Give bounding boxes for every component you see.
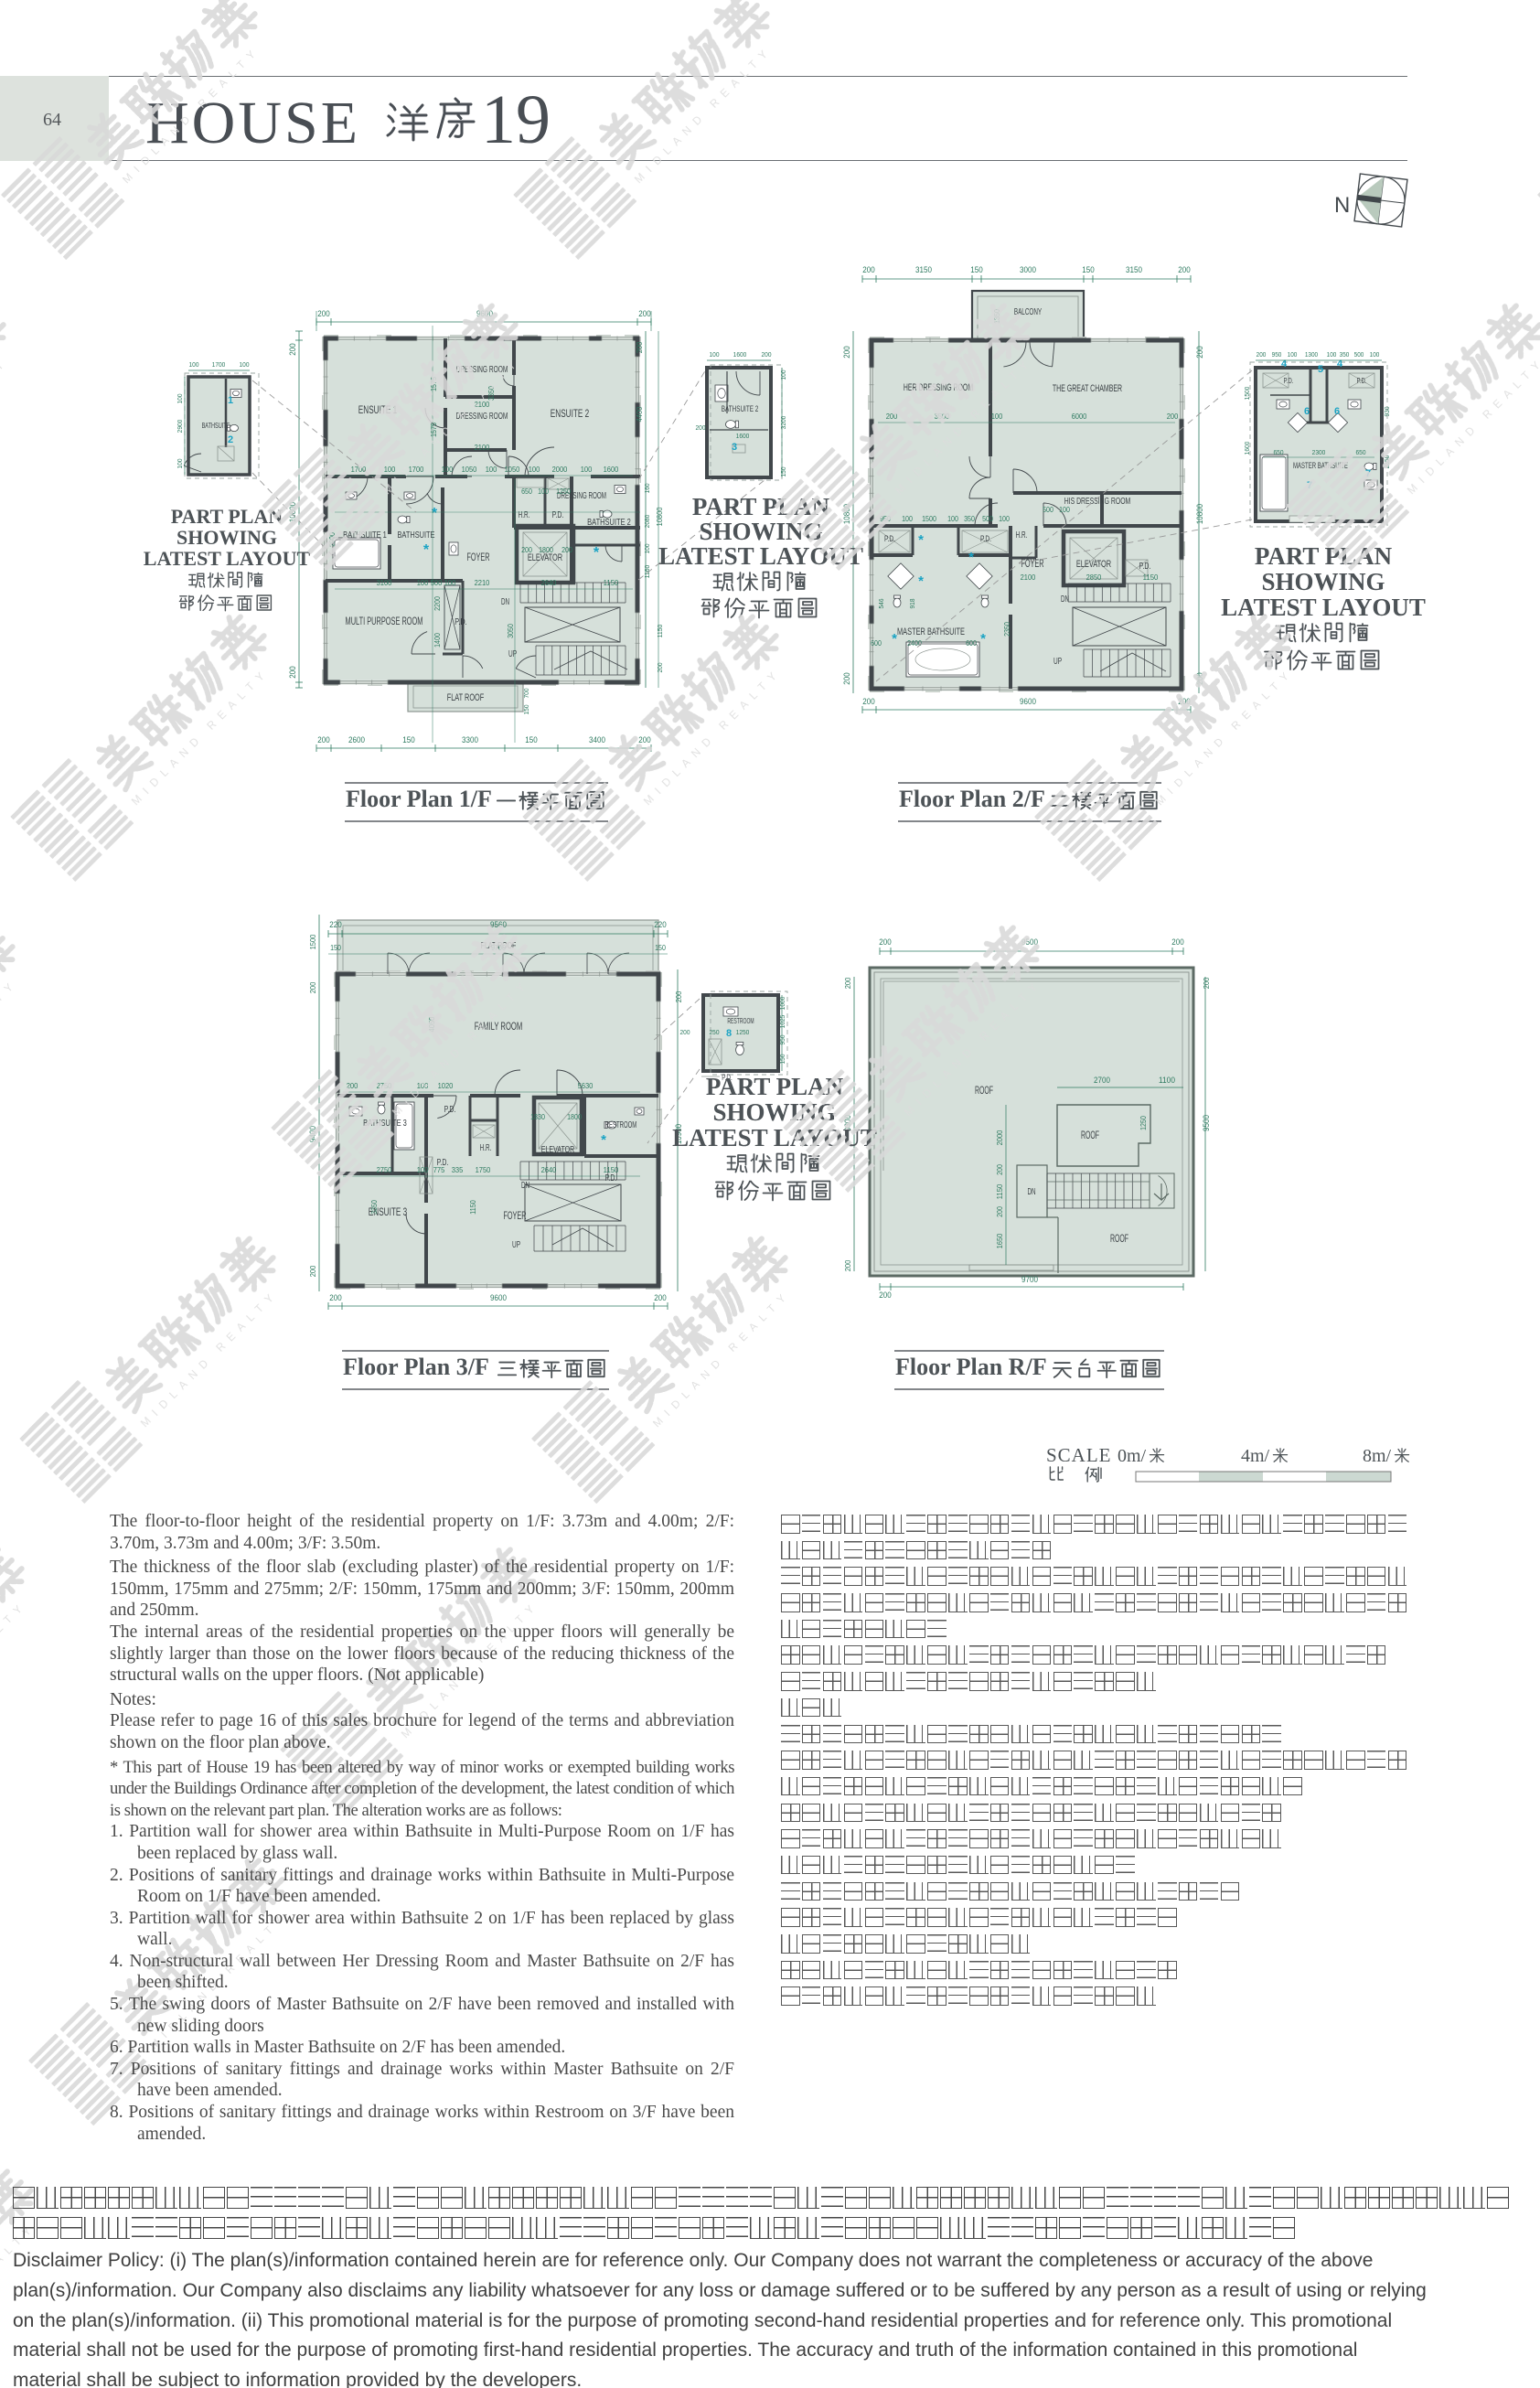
svg-text:1150: 1150: [469, 1200, 477, 1215]
svg-text:500: 500: [1043, 506, 1053, 514]
svg-text:2100: 2100: [475, 443, 490, 452]
svg-text:BATHSUITE: BATHSUITE: [202, 422, 230, 430]
svg-text:1800: 1800: [539, 546, 553, 554]
svg-text:5: 5: [1318, 364, 1323, 375]
svg-text:100: 100: [444, 578, 456, 587]
svg-text:Floor Plan R/F: Floor Plan R/F: [895, 1354, 1047, 1380]
svg-text:UP: UP: [512, 1239, 520, 1250]
svg-text:1025: 1025: [778, 1015, 786, 1029]
svg-text:SCALE: SCALE: [1046, 1444, 1112, 1466]
svg-text:100: 100: [417, 1165, 429, 1174]
svg-text:200: 200: [996, 1206, 1004, 1217]
svg-text:DN: DN: [521, 1180, 529, 1191]
svg-text:THE GREAT CHAMBER: THE GREAT CHAMBER: [1053, 383, 1122, 394]
svg-text:1100: 1100: [1159, 1076, 1175, 1085]
svg-text:200: 200: [674, 991, 683, 1002]
svg-text:1500: 1500: [922, 515, 936, 523]
svg-text:P.D.: P.D.: [1357, 376, 1367, 385]
svg-text:3050: 3050: [507, 624, 515, 638]
svg-text:6: 6: [1334, 406, 1340, 417]
svg-text:150: 150: [778, 1055, 786, 1065]
svg-text:*: *: [918, 532, 924, 548]
svg-text:100: 100: [1327, 350, 1337, 359]
svg-text:H.R.: H.R.: [480, 1143, 492, 1153]
svg-text:1400: 1400: [433, 633, 442, 648]
svg-text:650: 650: [1274, 448, 1284, 456]
svg-text:918: 918: [908, 599, 916, 609]
svg-text:200: 200: [317, 309, 329, 318]
svg-text:BATHSUITE 2: BATHSUITE 2: [587, 517, 631, 528]
svg-text:160: 160: [643, 484, 651, 494]
svg-text:200: 200: [996, 1164, 1004, 1175]
svg-text:2: 2: [228, 434, 233, 445]
svg-text:LATEST LAYOUT: LATEST LAYOUT: [658, 542, 863, 570]
svg-text:2350: 2350: [1003, 622, 1011, 637]
svg-text:1000: 1000: [778, 997, 786, 1011]
svg-text:SHOWING: SHOWING: [1261, 568, 1385, 595]
svg-text:H.R.: H.R.: [1016, 530, 1028, 541]
svg-text:200: 200: [521, 546, 532, 554]
svg-text:2080: 2080: [643, 515, 651, 529]
svg-text:930: 930: [1383, 407, 1391, 417]
svg-text:P.D.: P.D.: [884, 534, 895, 544]
svg-text:6000: 6000: [1072, 412, 1087, 421]
svg-text:RESTROOM: RESTROOM: [727, 1016, 754, 1025]
svg-text:500: 500: [1354, 350, 1364, 359]
svg-text:1700: 1700: [212, 360, 226, 369]
svg-text:1150: 1150: [604, 1165, 619, 1174]
svg-text:PART PLAN: PART PLAN: [171, 505, 283, 528]
svg-text:2200: 2200: [433, 596, 442, 611]
svg-text:3200: 3200: [779, 416, 787, 430]
svg-text:150: 150: [655, 944, 666, 952]
svg-text:3150: 3150: [1126, 265, 1142, 274]
svg-text:150: 150: [522, 705, 530, 715]
svg-text:LATEST LAYOUT: LATEST LAYOUT: [144, 547, 311, 570]
svg-text:*: *: [980, 631, 986, 647]
svg-text:1150: 1150: [1143, 573, 1159, 582]
svg-text:220: 220: [329, 920, 341, 929]
svg-text:100: 100: [902, 515, 913, 523]
svg-text:8: 8: [726, 1028, 732, 1039]
svg-text:1150: 1150: [656, 625, 664, 638]
svg-text:200: 200: [879, 937, 891, 947]
svg-text:1830: 1830: [530, 1113, 545, 1121]
svg-text:200: 200: [1167, 412, 1179, 421]
svg-text:200: 200: [842, 672, 851, 684]
svg-text:950: 950: [778, 1035, 786, 1045]
svg-text:P.D.: P.D.: [444, 1105, 456, 1115]
svg-text:200: 200: [862, 265, 874, 274]
svg-text:1050: 1050: [505, 465, 520, 474]
svg-text:19: 19: [481, 81, 551, 158]
svg-text:1750: 1750: [476, 1165, 491, 1174]
svg-text:650: 650: [521, 487, 532, 496]
svg-text:3350: 3350: [370, 1200, 379, 1215]
svg-text:1600: 1600: [736, 432, 750, 440]
svg-text:500: 500: [431, 578, 443, 587]
svg-text:FLAT ROOF: FLAT ROOF: [447, 692, 485, 703]
svg-text:200: 200: [288, 666, 297, 678]
svg-text:100: 100: [240, 360, 250, 369]
svg-text:P.D.: P.D.: [605, 1173, 617, 1183]
svg-text:200: 200: [1178, 265, 1190, 274]
svg-text:150: 150: [970, 265, 982, 274]
svg-text:FOYER: FOYER: [466, 551, 489, 563]
svg-text:3150: 3150: [915, 265, 932, 274]
svg-text:350: 350: [964, 515, 975, 523]
svg-text:9700: 9700: [1021, 1275, 1038, 1284]
svg-text:2750: 2750: [377, 1165, 392, 1174]
svg-text:0m/: 0m/: [1118, 1446, 1147, 1466]
svg-text:2210: 2210: [475, 578, 490, 587]
svg-text:4m/: 4m/: [1241, 1446, 1270, 1466]
svg-text:200: 200: [561, 546, 572, 554]
svg-text:1050: 1050: [462, 465, 477, 474]
svg-text:335: 335: [452, 1165, 464, 1174]
svg-text:9600: 9600: [490, 1293, 507, 1302]
svg-text:SHOWING: SHOWING: [176, 526, 277, 549]
svg-text:100: 100: [486, 465, 497, 474]
svg-text:Floor Plan 2/F: Floor Plan 2/F: [899, 786, 1045, 812]
svg-text:200: 200: [680, 1028, 690, 1036]
svg-text:200: 200: [1202, 977, 1211, 989]
svg-text:950: 950: [1272, 350, 1282, 359]
svg-text:BATHSUITE: BATHSUITE: [398, 530, 435, 541]
svg-text:PART PLAN: PART PLAN: [706, 1073, 844, 1100]
svg-text:*: *: [892, 631, 897, 647]
svg-text:1600: 1600: [733, 350, 747, 359]
svg-text:DN: DN: [501, 596, 509, 607]
svg-text:2100: 2100: [1021, 573, 1036, 582]
svg-text:200: 200: [654, 1293, 666, 1302]
svg-text:100: 100: [417, 578, 429, 587]
svg-text:200: 200: [308, 981, 317, 993]
svg-text:FOYER: FOYER: [503, 1210, 526, 1222]
svg-text:650: 650: [1356, 448, 1366, 456]
svg-text:1800: 1800: [567, 1113, 582, 1121]
svg-text:5630: 5630: [578, 1081, 594, 1090]
svg-text:200: 200: [308, 1265, 317, 1277]
svg-text:*: *: [594, 545, 600, 561]
svg-text:N: N: [1334, 193, 1350, 218]
svg-text:2900: 2900: [176, 420, 184, 434]
svg-text:100: 100: [384, 465, 396, 474]
svg-text:150: 150: [402, 735, 414, 744]
svg-text:1300: 1300: [1305, 350, 1318, 359]
svg-text:*: *: [918, 573, 924, 589]
svg-text:3100: 3100: [377, 578, 392, 587]
svg-text:1150: 1150: [604, 578, 619, 587]
svg-text:FOYER: FOYER: [1021, 558, 1043, 570]
svg-text:775: 775: [433, 1165, 445, 1174]
svg-text:100: 100: [529, 465, 540, 474]
svg-text:RESTROOM: RESTROOM: [605, 1120, 637, 1130]
svg-text:200: 200: [843, 977, 852, 989]
svg-text:MULTI PURPOSE ROOM: MULTI PURPOSE ROOM: [346, 616, 423, 627]
svg-text:ROOF: ROOF: [975, 1085, 993, 1097]
svg-text:2850: 2850: [1086, 573, 1102, 582]
svg-text:200: 200: [1195, 346, 1204, 358]
svg-text:100: 100: [189, 360, 199, 369]
svg-text:100: 100: [176, 394, 184, 404]
svg-text:DN: DN: [1027, 1186, 1035, 1197]
svg-text:4400: 4400: [635, 406, 644, 422]
svg-text:100: 100: [538, 487, 549, 496]
svg-text:200: 200: [762, 350, 772, 359]
svg-text:546: 546: [877, 599, 885, 609]
svg-text:UP: UP: [1053, 656, 1062, 667]
svg-text:*: *: [968, 550, 974, 565]
svg-text:1160: 1160: [643, 565, 651, 579]
svg-text:ROOF: ROOF: [1110, 1233, 1128, 1245]
svg-text:1250: 1250: [736, 1028, 750, 1036]
svg-text:3400: 3400: [589, 735, 605, 744]
svg-text:100: 100: [643, 544, 651, 554]
svg-text:1020: 1020: [438, 1081, 454, 1090]
svg-text:ELEVATOR: ELEVATOR: [1076, 559, 1111, 570]
svg-text:*: *: [423, 542, 430, 558]
svg-text:220: 220: [654, 920, 666, 929]
svg-text:1250: 1250: [1139, 1116, 1148, 1130]
svg-text:250: 250: [710, 1028, 720, 1036]
svg-text:200: 200: [638, 309, 650, 318]
svg-text:200: 200: [1257, 350, 1267, 359]
svg-text:200: 200: [635, 341, 644, 353]
svg-text:150: 150: [1082, 265, 1094, 274]
svg-text:9600: 9600: [1020, 697, 1036, 706]
svg-text:200: 200: [638, 735, 650, 744]
svg-text:1650: 1650: [995, 1233, 1004, 1248]
svg-text:200: 200: [842, 346, 851, 358]
svg-text:SHOWING: SHOWING: [712, 1098, 836, 1126]
svg-text:3000: 3000: [1020, 265, 1036, 274]
svg-text:1500: 1500: [308, 934, 317, 949]
svg-text:P.D.: P.D.: [1139, 562, 1151, 572]
svg-text:DN: DN: [1061, 594, 1069, 605]
svg-text:200: 200: [656, 663, 664, 673]
svg-text:200: 200: [879, 1290, 891, 1300]
svg-text:100: 100: [581, 465, 593, 474]
svg-text:2400: 2400: [907, 639, 922, 648]
svg-text:700: 700: [522, 689, 530, 699]
svg-text:1250: 1250: [556, 487, 571, 496]
svg-text:600: 600: [871, 639, 882, 648]
svg-text:100: 100: [1288, 350, 1298, 359]
svg-text:*: *: [601, 1132, 606, 1148]
svg-text:2000: 2000: [552, 465, 568, 474]
svg-text:150: 150: [330, 944, 341, 952]
svg-text:8m/: 8m/: [1363, 1446, 1392, 1466]
svg-text:200: 200: [329, 1293, 341, 1302]
svg-text:200: 200: [696, 423, 706, 432]
svg-text:100: 100: [442, 465, 454, 474]
svg-text:BATHSUITE 2: BATHSUITE 2: [722, 404, 759, 413]
svg-text:350: 350: [1340, 350, 1350, 359]
svg-text:P.D.: P.D.: [980, 534, 991, 544]
svg-text:1500: 1500: [1243, 387, 1251, 401]
svg-text:10800: 10800: [1195, 504, 1204, 524]
svg-text:500: 500: [982, 515, 993, 523]
svg-text:2700: 2700: [1094, 1076, 1110, 1085]
svg-text:200: 200: [317, 735, 329, 744]
svg-text:2000: 2000: [995, 1130, 1004, 1145]
svg-text:HIS DRESSING ROOM: HIS DRESSING ROOM: [1064, 496, 1131, 507]
svg-text:3300: 3300: [462, 735, 478, 744]
svg-text:200: 200: [1171, 937, 1183, 947]
svg-text:200: 200: [843, 1259, 852, 1271]
svg-text:P.D.: P.D.: [552, 510, 564, 520]
svg-text:P.D.: P.D.: [1284, 376, 1294, 385]
svg-text:10800: 10800: [655, 507, 664, 526]
svg-text:6: 6: [1304, 406, 1310, 417]
svg-text:9500: 9500: [1202, 1115, 1211, 1131]
svg-text:100: 100: [779, 370, 787, 380]
svg-text:1600: 1600: [1243, 442, 1251, 455]
svg-text:2300: 2300: [1312, 448, 1326, 456]
svg-text:100: 100: [991, 412, 1003, 421]
svg-text:Floor Plan 3/F: Floor Plan 3/F: [343, 1354, 489, 1380]
svg-text:ENSUITE 2: ENSUITE 2: [551, 408, 589, 420]
svg-text:1150: 1150: [995, 1183, 1004, 1199]
svg-text:100: 100: [999, 515, 1010, 523]
svg-text:100: 100: [1370, 350, 1380, 359]
svg-text:2640: 2640: [541, 578, 557, 587]
svg-text:1: 1: [228, 395, 233, 406]
svg-text:100: 100: [1059, 506, 1070, 514]
svg-text:200: 200: [862, 697, 874, 706]
svg-text:Floor Plan 1/F: Floor Plan 1/F: [346, 786, 492, 812]
svg-text:200: 200: [288, 343, 297, 355]
svg-text:100: 100: [710, 350, 720, 359]
svg-text:150: 150: [525, 735, 537, 744]
svg-text:MASTER BATHSUITE: MASTER BATHSUITE: [897, 626, 965, 637]
svg-text:UP: UP: [508, 648, 517, 659]
svg-text:100: 100: [176, 459, 184, 469]
svg-text:600: 600: [966, 639, 977, 648]
svg-text:P.D.: P.D.: [455, 616, 466, 627]
svg-text:1600: 1600: [604, 465, 619, 474]
svg-text:H.R.: H.R.: [519, 510, 530, 520]
svg-text:150: 150: [779, 467, 787, 477]
svg-text:ROOF: ROOF: [1081, 1130, 1099, 1141]
svg-text:2640: 2640: [541, 1165, 557, 1174]
svg-text:2600: 2600: [348, 735, 365, 744]
svg-text:ELEVATOR: ELEVATOR: [541, 1144, 575, 1155]
svg-text:3: 3: [732, 442, 737, 453]
svg-text:100: 100: [947, 515, 958, 523]
